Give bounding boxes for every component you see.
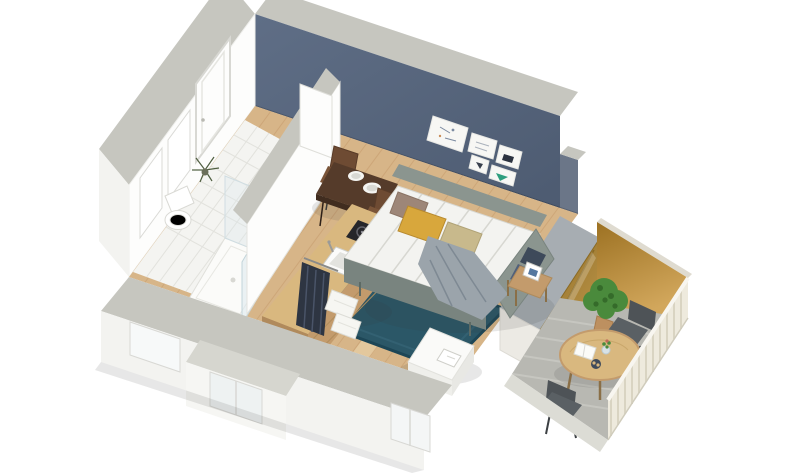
blue-wall-low-step	[560, 154, 578, 214]
shower-drain	[231, 278, 236, 283]
floor-plan-render	[0, 0, 800, 473]
door-handle	[201, 118, 205, 122]
breakfast-tray	[591, 359, 601, 369]
bathroom-door	[300, 84, 332, 158]
floor-plan-stage	[0, 0, 800, 473]
